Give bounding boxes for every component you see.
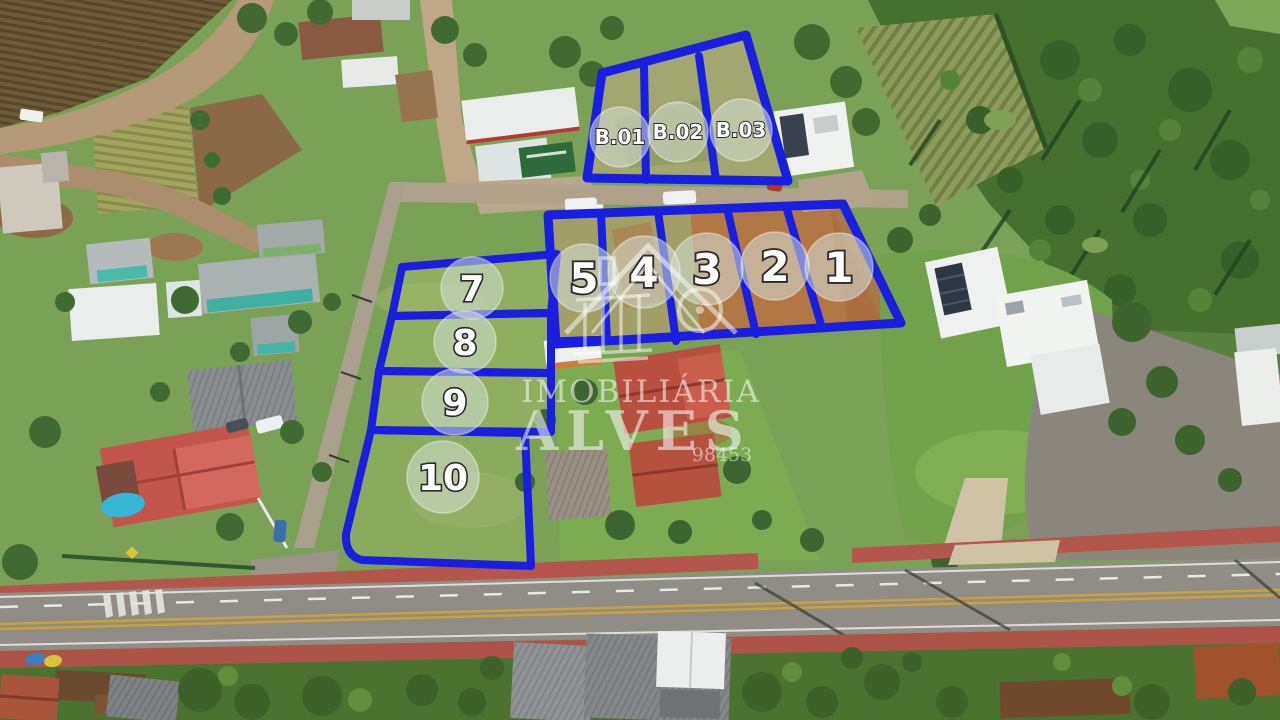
watermark-number: 98453 [692,444,752,466]
house-columns-logo-icon [566,246,736,362]
aerial-photo: B.01B.02B.031234578910 IMOBILIÁRIA ALVES… [0,0,1280,720]
watermark: IMOBILIÁRIA ALVES 98453 [0,0,1280,720]
